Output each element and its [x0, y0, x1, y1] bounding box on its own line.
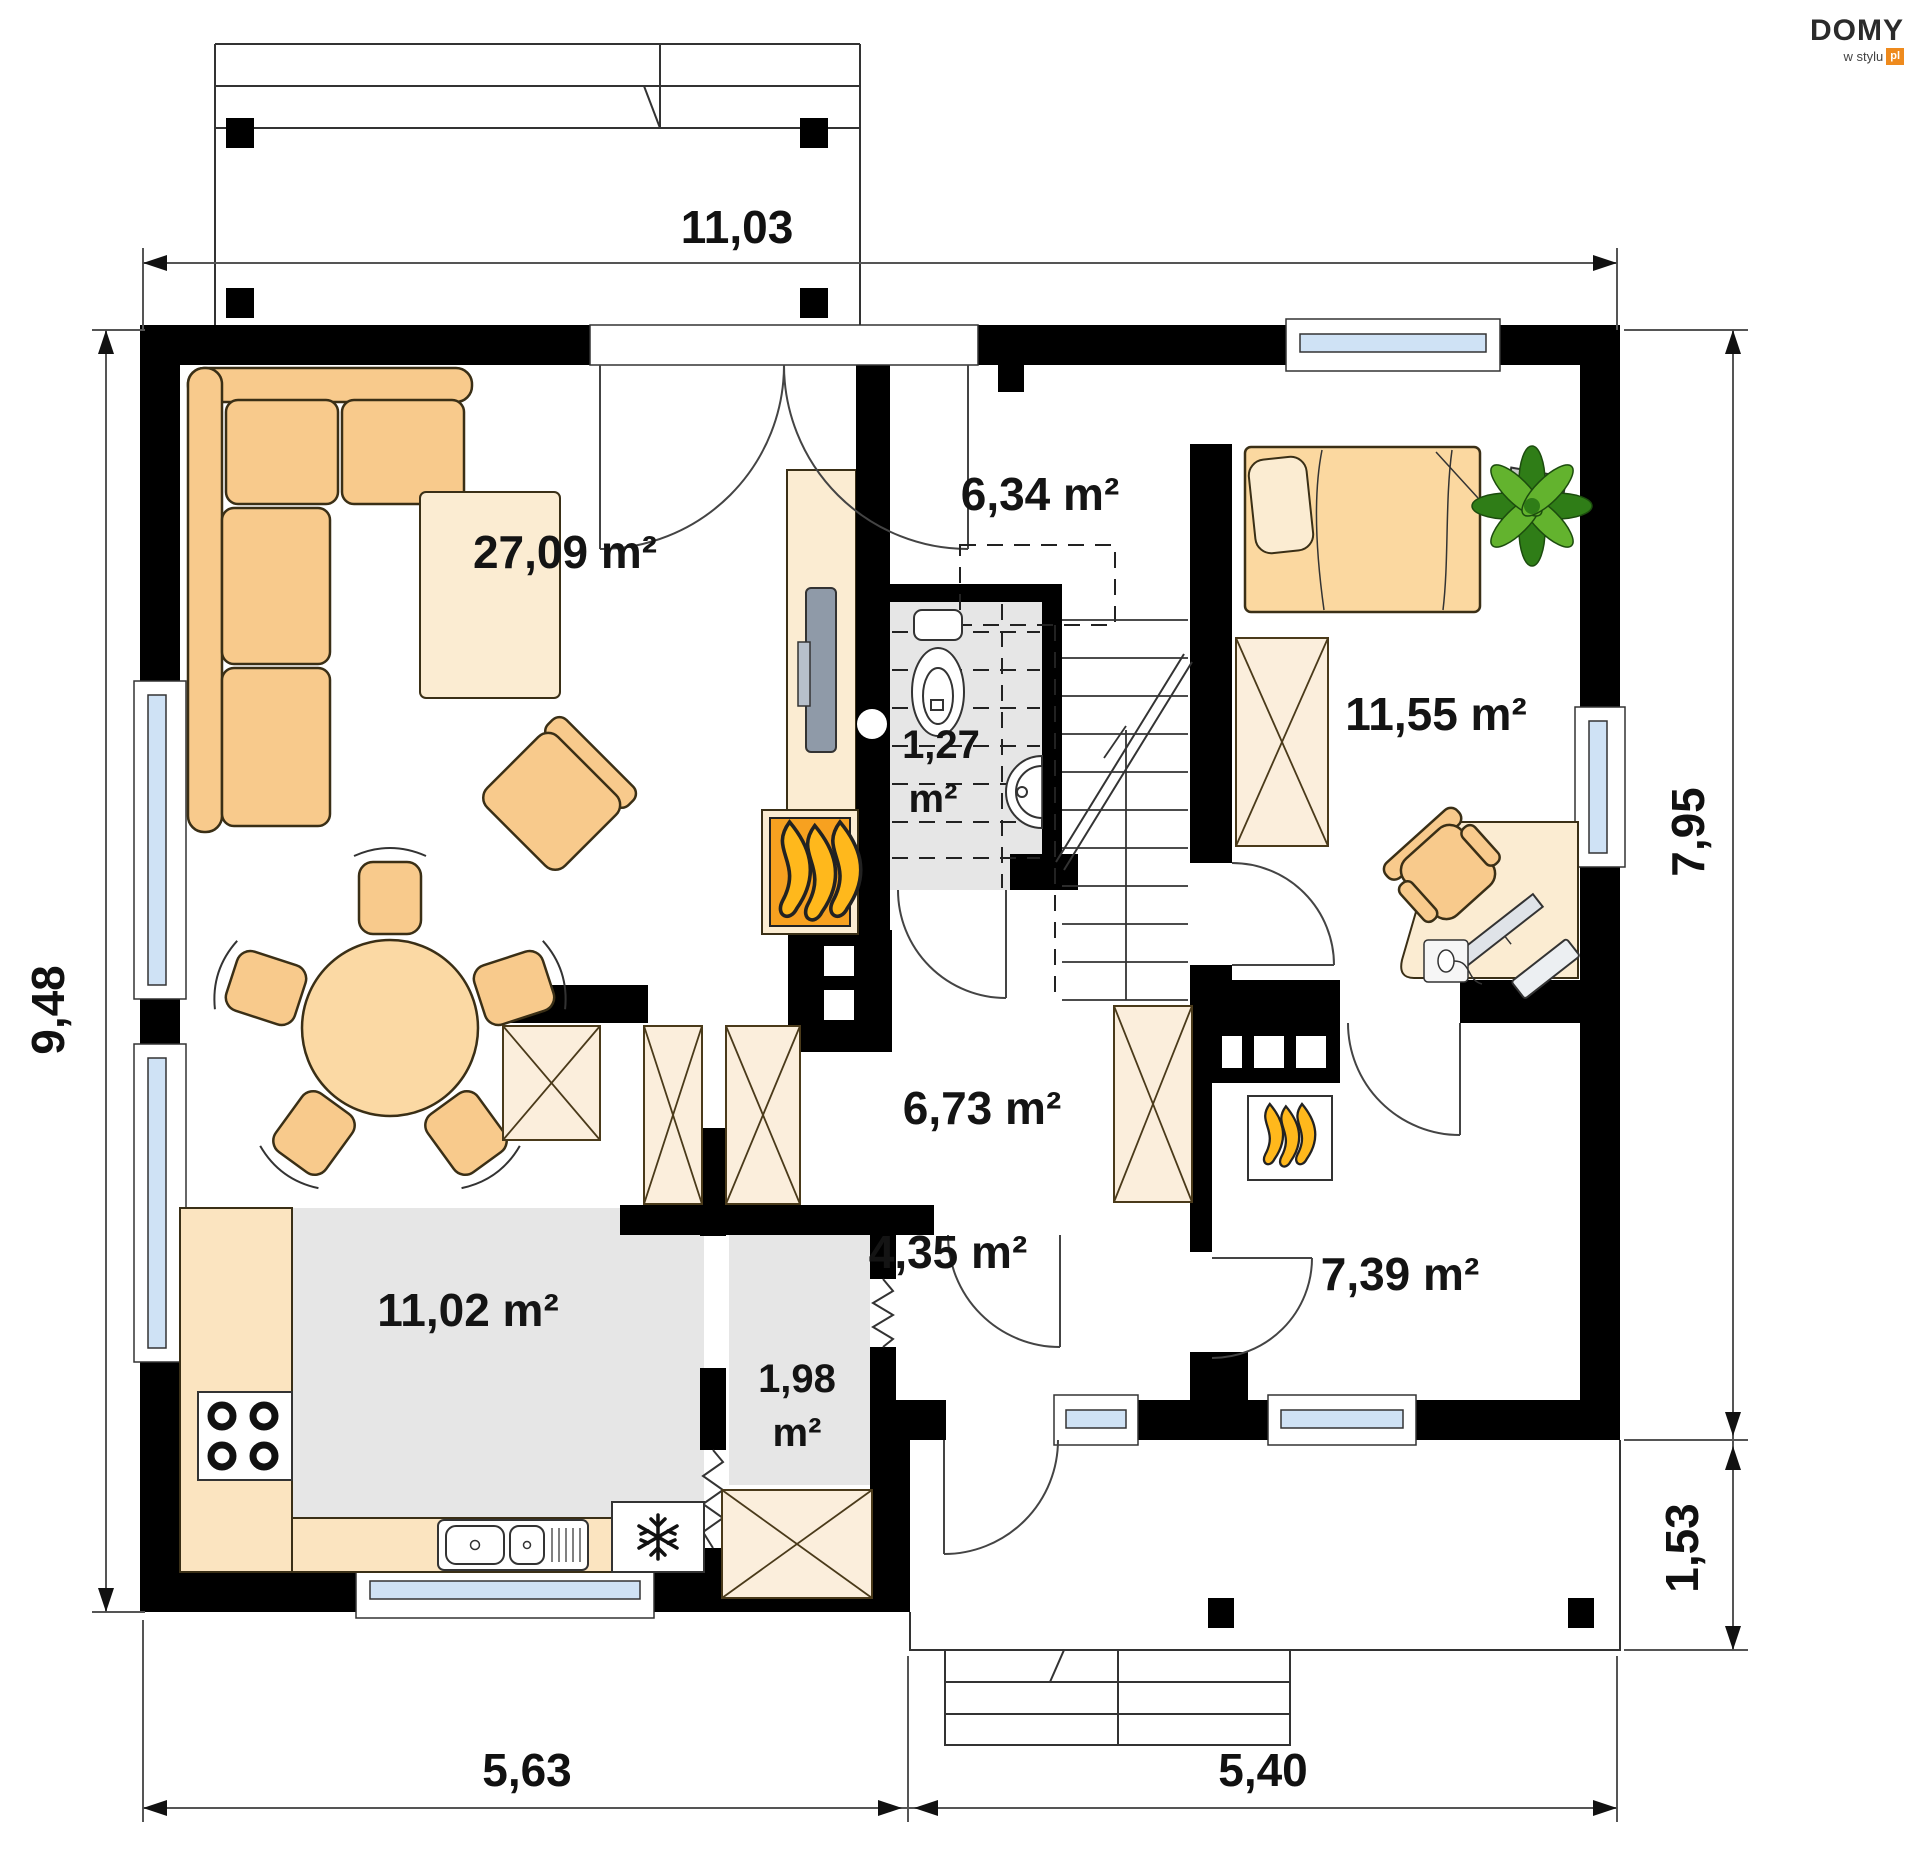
dim-left: 9,48	[22, 965, 74, 1055]
bed	[1245, 447, 1480, 612]
wardrobe	[722, 1490, 872, 1598]
window	[1575, 707, 1625, 867]
kitchen-label: 11,02 m²	[377, 1284, 559, 1336]
wardrobe	[726, 1026, 800, 1204]
fridge	[612, 1502, 704, 1572]
wardrobe	[1114, 1006, 1192, 1202]
pantry-label-line1: 1,98	[758, 1357, 836, 1401]
post	[800, 118, 828, 148]
dim-bottom-left: 5,63	[482, 1744, 572, 1796]
post	[226, 118, 254, 148]
window	[1268, 1395, 1416, 1445]
post	[800, 288, 828, 318]
living-room-label: 27,09 m²	[473, 526, 657, 578]
column	[998, 362, 1024, 392]
post	[1568, 1598, 1594, 1628]
brand-name: DOMY	[1810, 16, 1904, 46]
door-utility-upper	[1348, 1023, 1460, 1135]
staircase-label: 6,34 m²	[961, 468, 1120, 520]
doors	[898, 863, 1460, 1554]
window	[1054, 1395, 1138, 1445]
armchair	[476, 713, 640, 877]
wc-label-line1: 1,27	[902, 723, 980, 767]
dining-chair	[354, 848, 426, 934]
door-utility	[1212, 1258, 1312, 1358]
dim-right-upper: 7,95	[1662, 787, 1714, 877]
window	[356, 1566, 654, 1618]
window	[1286, 319, 1500, 371]
kitchen-sink	[438, 1520, 588, 1570]
wardrobe	[503, 1026, 600, 1140]
dim-top: 11,03	[681, 201, 794, 253]
vestibule-label: 4,35 m²	[869, 1226, 1028, 1278]
floor-plan-drawing: 11,03 9,48 7,95 1,53 5,63 5,40 27,09 m² …	[0, 0, 1920, 1868]
post	[226, 288, 254, 318]
furnace	[1248, 1096, 1332, 1180]
wardrobe	[1236, 638, 1328, 846]
door-bedroom	[1232, 863, 1334, 965]
utility-label: 7,39 m²	[1321, 1248, 1480, 1300]
kitchen-counter-left	[180, 1208, 292, 1572]
brand-logo: DOMY w stylu pl	[1810, 16, 1904, 65]
toilet	[912, 610, 964, 736]
floor-plan-page: 11,03 9,48 7,95 1,53 5,63 5,40 27,09 m² …	[0, 0, 1920, 1868]
post	[1208, 1598, 1234, 1628]
carport	[215, 44, 860, 325]
dim-right-lower: 1,53	[1656, 1503, 1708, 1593]
door-main-entrance	[944, 1440, 1058, 1554]
zigzag-partition	[703, 1450, 723, 1548]
zigzag-partition	[873, 1279, 893, 1347]
brand-tld-badge: pl	[1886, 48, 1904, 65]
pantry-label-line2: m²	[773, 1411, 822, 1455]
door-pivot-dot	[857, 709, 887, 739]
bedroom-label: 11,55 m²	[1345, 688, 1527, 740]
window	[134, 681, 186, 999]
wc-label-line2: m²	[909, 777, 958, 821]
door-wc	[898, 890, 1006, 998]
stove	[198, 1392, 292, 1480]
window	[134, 1044, 186, 1362]
dining-table	[302, 940, 478, 1116]
brand-tagline: w stylu	[1843, 50, 1883, 63]
dim-bottom-right: 5,40	[1218, 1744, 1308, 1796]
dining-chair	[207, 938, 311, 1033]
wardrobe	[644, 1026, 702, 1204]
coffee-table	[420, 492, 560, 698]
porch	[910, 1440, 1620, 1745]
fireplace	[762, 810, 861, 934]
plant	[1472, 446, 1592, 566]
entrance-double-door	[590, 325, 978, 549]
hall-label: 6,73 m²	[903, 1082, 1062, 1134]
